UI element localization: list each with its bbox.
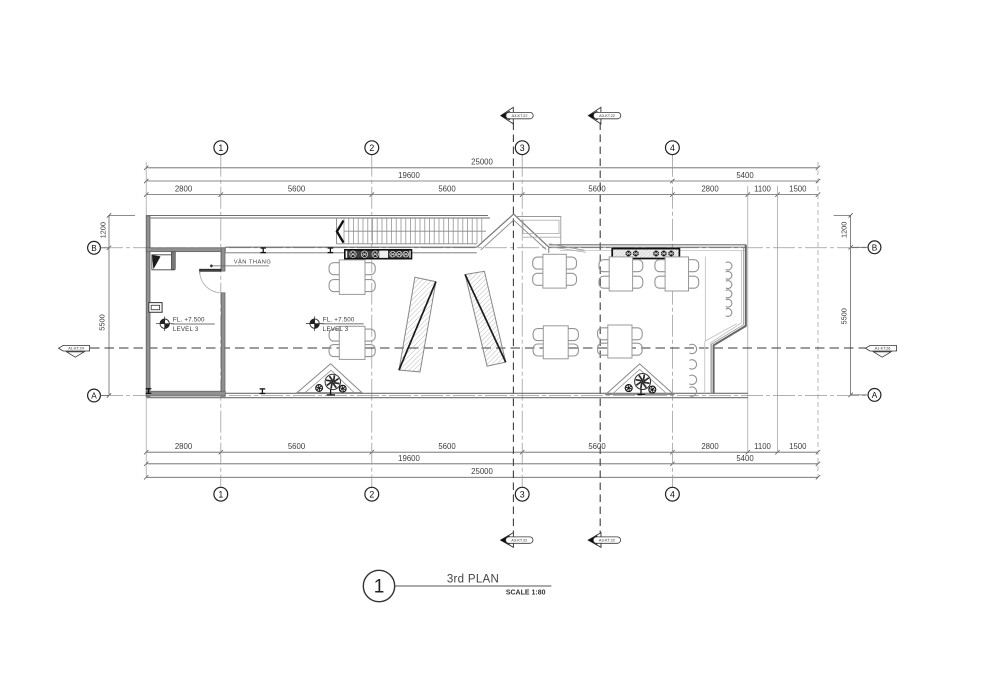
svg-text:A3-KT.22: A3-KT.22 (599, 113, 615, 118)
svg-text:1200: 1200 (840, 222, 849, 238)
svg-text:5600: 5600 (588, 442, 606, 451)
svg-text:5600: 5600 (288, 442, 306, 451)
svg-text:1100: 1100 (754, 442, 771, 451)
svg-text:19600: 19600 (398, 171, 420, 180)
svg-text:3rd PLAN: 3rd PLAN (447, 574, 499, 586)
svg-text:A3-KT.22: A3-KT.22 (511, 538, 527, 543)
svg-text:19600: 19600 (398, 454, 420, 463)
svg-text:B: B (91, 244, 97, 253)
svg-text:SCALE 1:80: SCALE 1:80 (506, 589, 546, 596)
svg-text:2800: 2800 (175, 184, 193, 193)
svg-text:3: 3 (520, 489, 525, 499)
svg-text:5400: 5400 (736, 454, 754, 463)
svg-text:VẬN THANG: VẬN THANG (234, 258, 272, 265)
svg-text:1100: 1100 (754, 184, 771, 193)
svg-text:5500: 5500 (840, 308, 849, 324)
svg-text:5400: 5400 (736, 171, 754, 180)
svg-text:A: A (872, 391, 878, 400)
svg-text:5500: 5500 (98, 314, 107, 330)
svg-text:2: 2 (369, 143, 374, 153)
svg-text:2800: 2800 (175, 442, 193, 451)
svg-text:1500: 1500 (789, 184, 807, 193)
svg-text:1500: 1500 (789, 442, 807, 451)
svg-text:A: A (91, 391, 97, 400)
svg-text:25000: 25000 (471, 467, 493, 476)
svg-text:5600: 5600 (438, 442, 456, 451)
svg-text:LEVEL 3: LEVEL 3 (173, 326, 199, 333)
svg-text:25000: 25000 (471, 158, 493, 167)
svg-text:A3-KT.22: A3-KT.22 (511, 113, 527, 118)
svg-text:A1-KT.24: A1-KT.24 (68, 347, 84, 351)
svg-text:LEVEL 3: LEVEL 3 (323, 326, 349, 333)
svg-text:5600: 5600 (288, 184, 306, 193)
svg-text:A3-KT.22: A3-KT.22 (599, 538, 615, 543)
svg-text:2: 2 (369, 489, 374, 499)
svg-text:5600: 5600 (588, 184, 606, 193)
svg-text:4: 4 (670, 143, 675, 153)
svg-text:2800: 2800 (701, 442, 719, 451)
svg-text:FL. +7.500: FL. +7.500 (173, 317, 205, 324)
svg-text:1: 1 (218, 489, 223, 499)
svg-text:1200: 1200 (99, 222, 108, 238)
svg-text:5600: 5600 (438, 184, 456, 193)
svg-text:4: 4 (670, 489, 675, 499)
svg-text:B: B (872, 243, 878, 252)
svg-text:FL. +7.500: FL. +7.500 (323, 316, 355, 323)
svg-text:1: 1 (218, 143, 223, 153)
svg-text:A1-KT.26: A1-KT.26 (875, 347, 891, 351)
svg-text:3: 3 (520, 143, 525, 153)
svg-text:2800: 2800 (701, 184, 719, 193)
svg-text:1: 1 (374, 577, 385, 598)
